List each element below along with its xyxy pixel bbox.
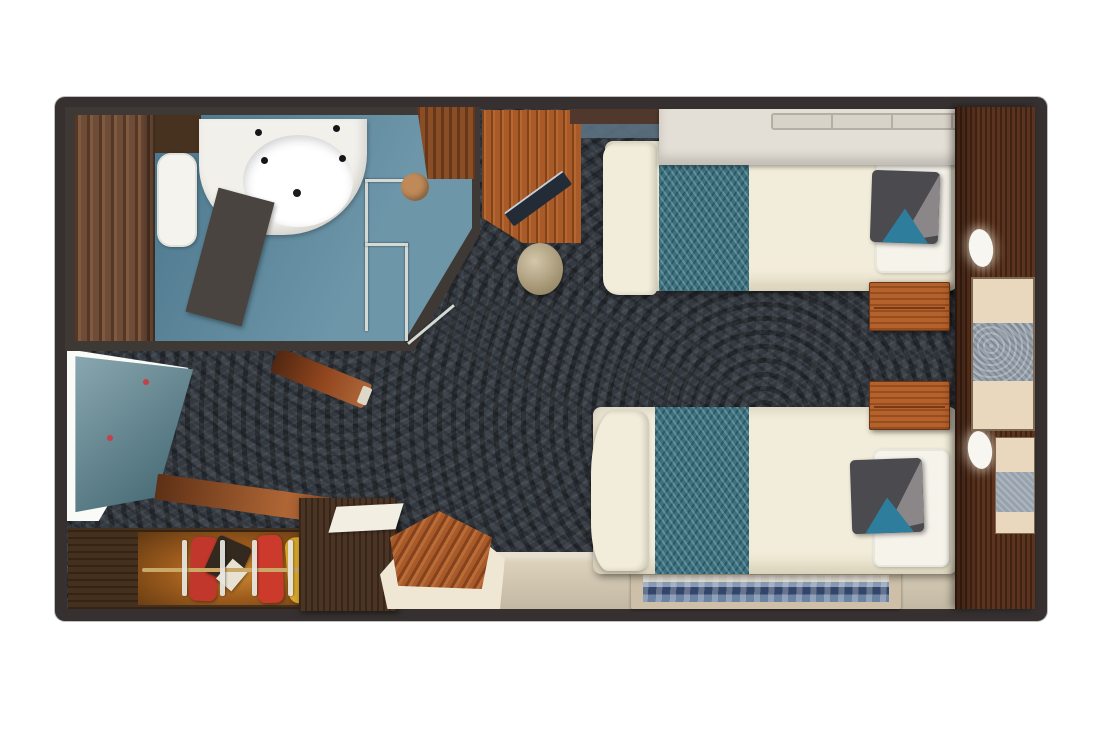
shower-head-seat bbox=[401, 173, 429, 201]
nightstand-2 bbox=[869, 381, 950, 430]
reading-lamp-icon bbox=[965, 430, 994, 471]
papers bbox=[328, 503, 403, 532]
wardrobe-interior bbox=[138, 532, 326, 605]
faucet-icon bbox=[333, 125, 340, 132]
twin-bed-2 bbox=[593, 407, 957, 574]
faucet-icon bbox=[339, 155, 346, 162]
closet-rail bbox=[142, 568, 322, 572]
area-rug bbox=[631, 569, 901, 609]
hanger-icon bbox=[288, 540, 293, 596]
rug-artwork bbox=[643, 575, 889, 602]
nightstand-1 bbox=[869, 282, 950, 331]
headboard-wall bbox=[955, 107, 1035, 609]
grab-rail bbox=[405, 243, 408, 341]
vanity-runner bbox=[973, 323, 1033, 381]
laptop bbox=[504, 170, 572, 226]
teal-bed-runner bbox=[655, 407, 749, 574]
door-hinge bbox=[107, 435, 113, 441]
floorplan-frame bbox=[55, 97, 1047, 621]
toilet bbox=[157, 153, 197, 247]
desk bbox=[482, 110, 581, 243]
accent-pillow bbox=[850, 458, 925, 534]
stateroom-floorplan-image bbox=[0, 0, 1104, 736]
sideboard-cabinet bbox=[299, 498, 397, 611]
vanity-mat bbox=[996, 472, 1034, 512]
berth-vent-rail bbox=[771, 113, 965, 130]
grab-rail bbox=[365, 243, 408, 246]
bed-footboard bbox=[603, 143, 657, 295]
reading-lamp-icon bbox=[966, 228, 995, 269]
vanity-ledge bbox=[971, 277, 1035, 431]
accent-pillow bbox=[870, 170, 940, 244]
bathroom-cabinet bbox=[155, 115, 201, 153]
bathroom-wood-panel bbox=[75, 115, 155, 341]
bed-footboard bbox=[591, 411, 649, 571]
upper-berth-shelf bbox=[659, 109, 973, 165]
round-stool bbox=[517, 243, 563, 295]
door-handle bbox=[143, 379, 149, 385]
hanger-icon bbox=[252, 540, 257, 596]
hanger-icon bbox=[182, 540, 187, 596]
vanity-ledge-2 bbox=[995, 437, 1035, 534]
grab-rail bbox=[365, 179, 368, 331]
drain-icon bbox=[293, 189, 301, 197]
bathroom bbox=[65, 107, 480, 351]
hanger-icon bbox=[220, 540, 225, 596]
faucet-icon bbox=[255, 129, 262, 136]
faucet-icon bbox=[261, 157, 268, 164]
